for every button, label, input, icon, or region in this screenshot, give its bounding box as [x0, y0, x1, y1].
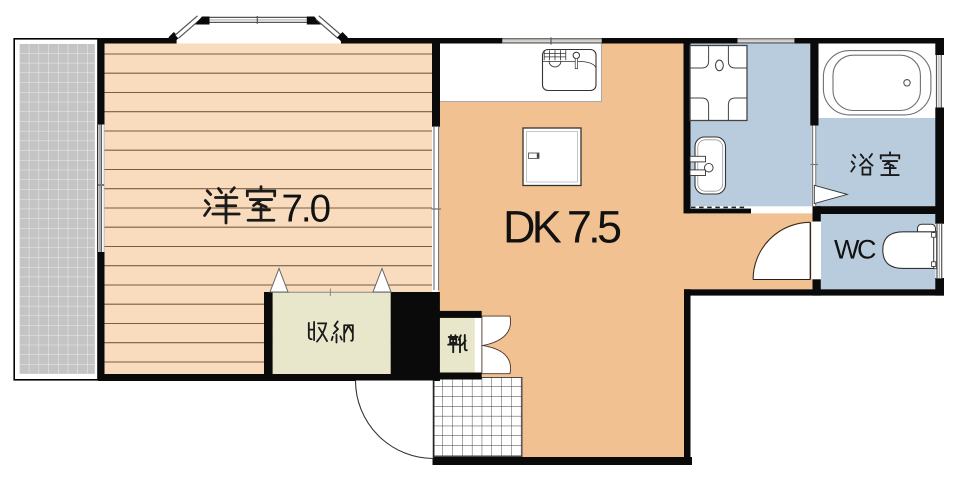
svg-text:DK 7.5: DK 7.5: [503, 202, 622, 253]
svg-text:7.0: 7.0: [282, 187, 332, 230]
svg-text:WC: WC: [834, 234, 877, 264]
